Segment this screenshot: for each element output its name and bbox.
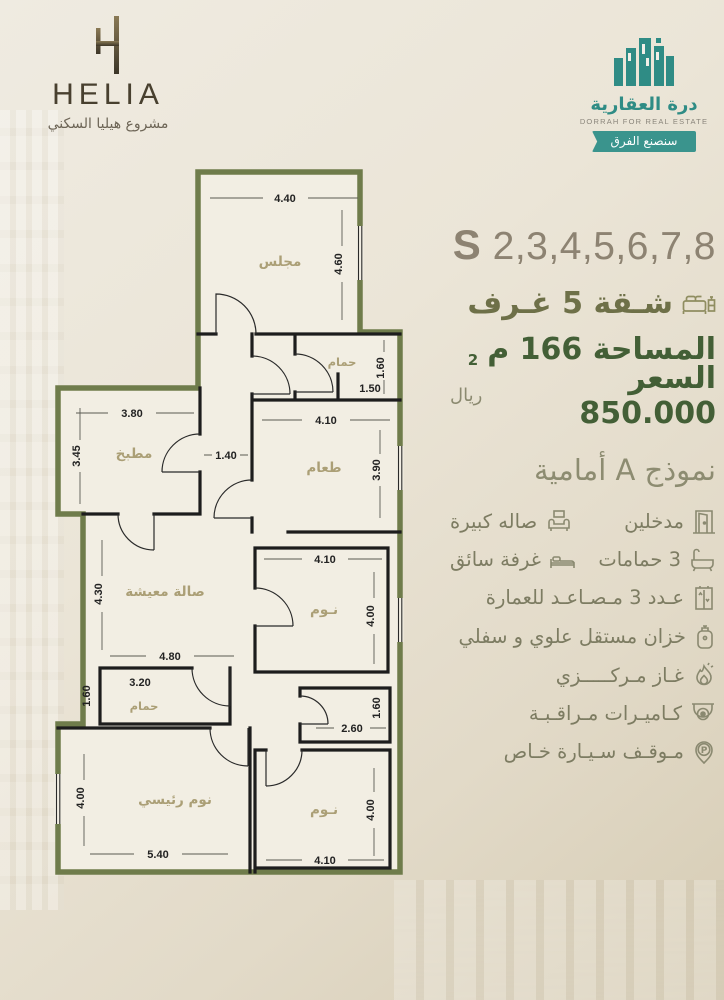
- parking-icon: P: [692, 738, 716, 765]
- bed-nightstand-icon: [682, 290, 716, 318]
- feature-text: 3 حمامات: [598, 548, 681, 571]
- feature-list: مدخلين صاله كبيرة 3 ح: [450, 509, 716, 765]
- feature-bathrooms: 3 حمامات: [598, 547, 716, 573]
- apartment-text: شـقة 5 غـرف: [467, 286, 673, 321]
- feature-row: كـاميـرات مـراقـبـة: [450, 701, 716, 726]
- flyer-background: HELIA مشروع هيليا السكني درة العقارية DO…: [0, 0, 724, 1000]
- dorrah-tagline-ribbon: سنصنع الفرق: [592, 131, 696, 152]
- dim-master-h: 4.00: [75, 787, 87, 808]
- dim-living-h: 4.30: [93, 583, 105, 604]
- spec-apartment: شـقة 5 غـرف: [450, 281, 716, 327]
- flame-icon: [692, 662, 716, 689]
- room-bath-top: حمام: [328, 355, 357, 369]
- unit-series-heading: S 2,3,4,5,6,7,8: [450, 222, 716, 269]
- feature-row: غـاز مـركـــــزي: [450, 662, 716, 689]
- dim-bedroom-bottom-h: 4.00: [365, 799, 377, 820]
- plan-outline: [58, 172, 400, 872]
- helia-monogram-icon: [85, 14, 131, 76]
- dim-bedroom-mid-w: 4.10: [314, 554, 335, 566]
- room-bedroom-bottom: نـوم: [310, 802, 338, 818]
- bed-icon: [549, 548, 576, 572]
- feature-text: غرفة سائق: [450, 548, 541, 571]
- dorrah-buildings-icon: [611, 36, 677, 88]
- feature-row: 3 حمامات غرفة سائق: [450, 547, 716, 573]
- dim-bedroom-bottom-w: 4.10: [314, 855, 335, 867]
- dim-bath-mid-w: 3.20: [129, 677, 150, 689]
- dim-kitchen-h: 3.45: [71, 445, 83, 466]
- feature-row: خزان مستقل علوي و سفلي: [450, 623, 716, 650]
- dim-majlis-h: 4.60: [333, 253, 345, 274]
- feature-row: عـدد 3 مـصـاعـد للعمارة: [450, 585, 716, 611]
- feature-water-tank: خزان مستقل علوي و سفلي: [459, 623, 716, 650]
- dorrah-name-arabic: درة العقارية: [576, 94, 712, 115]
- feature-text: مدخلين: [624, 510, 684, 533]
- series-numbers: 2,3,4,5,6,7,8: [493, 225, 716, 268]
- dim-living-w: 4.80: [159, 651, 180, 663]
- dim-bath-top-h: 1.60: [375, 357, 387, 378]
- feature-central-gas: غـاز مـركـــــزي: [556, 662, 716, 689]
- feature-row: P مـوقـف سـيـارة خـاص: [450, 738, 716, 765]
- feature-cctv: كـاميـرات مـراقـبـة: [529, 701, 716, 726]
- feature-text: غـاز مـركـــــزي: [556, 664, 684, 687]
- elevator-icon: [692, 585, 716, 611]
- model-heading: نموذج A أمامية: [450, 453, 716, 487]
- dim-master-w: 5.40: [147, 849, 168, 861]
- dim-bedroom-mid-h: 4.00: [365, 605, 377, 626]
- feature-text: خزان مستقل علوي و سفلي: [459, 625, 686, 648]
- bathtub-icon: [689, 547, 716, 573]
- dorrah-name-english: DORRAH FOR REAL ESTATE: [576, 117, 712, 126]
- dim-utility-h: 1.60: [371, 697, 383, 718]
- room-kitchen: مطبخ: [116, 446, 153, 462]
- feature-row: مدخلين صاله كبيرة: [450, 509, 716, 535]
- room-dining: طعام: [306, 460, 341, 476]
- room-bath-mid: حمام: [130, 699, 159, 713]
- door-icon: [692, 509, 716, 535]
- feature-driver-room: غرفة سائق: [450, 548, 576, 572]
- feature-text: عـدد 3 مـصـاعـد للعمارة: [486, 586, 684, 609]
- room-living: صالة معيشة: [125, 584, 204, 600]
- helia-logo: HELIA مشروع هيليا السكني: [28, 14, 188, 132]
- offer-panel: S 2,3,4,5,6,7,8 شـقة 5 غـرف المساحة 166 …: [450, 222, 716, 765]
- dim-corridor-w: 1.40: [215, 450, 236, 462]
- feature-entrances: مدخلين: [624, 509, 716, 535]
- spec-list: شـقة 5 غـرف المساحة 166 م2 السعر 850.000…: [450, 281, 716, 419]
- camera-icon: [690, 701, 716, 726]
- dim-bath-top-w: 1.50: [359, 383, 380, 395]
- feature-text: مـوقـف سـيـارة خـاص: [504, 740, 684, 763]
- feature-text: كـاميـرات مـراقـبـة: [529, 702, 682, 725]
- room-master-bedroom: نوم رئيسي: [138, 792, 212, 808]
- dorrah-logo: درة العقارية DORRAH FOR REAL ESTATE سنصن…: [576, 36, 712, 152]
- feature-elevators: عـدد 3 مـصـاعـد للعمارة: [486, 585, 716, 611]
- feature-large-hall: صاله كبيرة: [450, 509, 573, 535]
- price-text: السعر 850.000: [495, 361, 716, 431]
- helia-tagline: مشروع هيليا السكني: [28, 116, 188, 132]
- helia-wordmark: HELIA: [28, 78, 188, 112]
- dim-majlis-w: 4.40: [274, 193, 295, 205]
- floor-plan: 4.40 4.60 1.60 1.50 4.10 3.90 3.80 3.45 …: [40, 168, 460, 906]
- tank-icon: [694, 623, 716, 650]
- sofa-icon: [545, 509, 573, 535]
- area-superscript: 2: [468, 351, 478, 369]
- room-majlis: مجلس: [259, 254, 302, 270]
- dim-bath-mid-h: 1.60: [81, 685, 93, 706]
- dim-dining-h: 3.90: [371, 459, 383, 480]
- feature-private-parking: P مـوقـف سـيـارة خـاص: [504, 738, 716, 765]
- spec-price: السعر 850.000 ريال: [450, 373, 716, 419]
- room-bedroom-mid: نـوم: [310, 602, 338, 618]
- dim-dining-w: 4.10: [315, 415, 336, 427]
- parking-letter: P: [701, 746, 708, 756]
- dim-kitchen-w: 3.80: [121, 408, 142, 420]
- dim-utility-w: 2.60: [341, 723, 362, 735]
- feature-text: صاله كبيرة: [450, 510, 537, 533]
